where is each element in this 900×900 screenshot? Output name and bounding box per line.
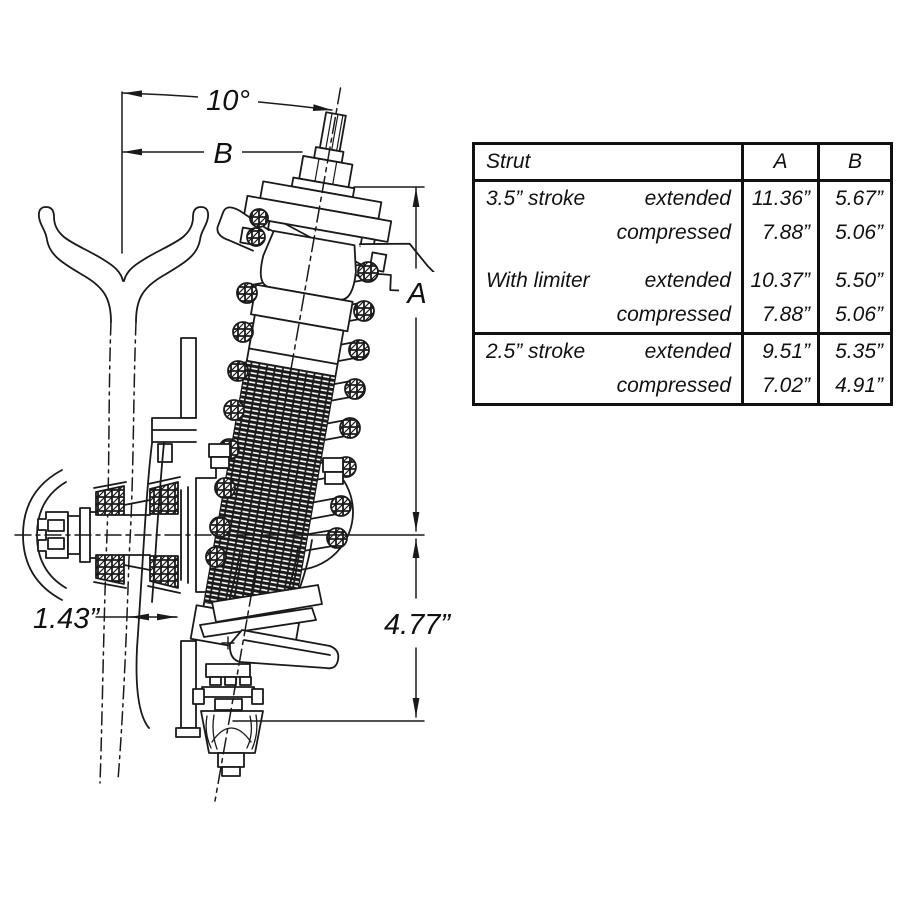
brake-rotor [137,338,201,737]
table-row: compressed7.88”5.06” [475,298,890,332]
row-a-value: 7.88” [741,216,817,250]
row-b-value: 5.06” [817,216,890,250]
row-state: extended [643,264,741,298]
row-a-value: 9.51” [741,335,817,369]
row-label: 2.5” stroke [475,335,643,369]
header-a: A [741,145,817,179]
row-b-value: 4.91” [817,369,890,403]
row-state: compressed [643,369,741,403]
outer-bearing-bottom [96,555,124,584]
table-row: 3.5” strokeextended11.36”5.67” [475,182,890,216]
table-body: 3.5” strokeextended11.36”5.67”compressed… [475,182,890,403]
row-state: extended [643,335,741,369]
table-spacer-row [475,250,890,264]
row-b-value: 5.06” [817,298,890,332]
row-state: extended [643,182,741,216]
table-row: With limiterextended10.37”5.50” [475,264,890,298]
row-label: With limiter [475,264,643,298]
strut-diagram-page: 10° B A 1.43” 4.77” Strut A B 3.5” strok… [0,0,900,900]
technical-drawing: 10° B A 1.43” 4.77” [0,0,900,900]
dim-b-label: B [213,138,232,170]
row-b-value: 5.50” [817,264,890,298]
dim-477-label: 4.77” [384,609,451,641]
row-state: compressed [643,298,741,332]
table-row: 2.5” strokeextended9.51”5.35” [475,335,890,369]
inner-bearing-top [150,482,178,514]
row-label: 3.5” stroke [475,182,643,216]
table-header-row: Strut A B [475,145,890,182]
row-a-value: 10.37” [741,264,817,298]
table-row: compressed7.02”4.91” [475,369,890,403]
row-a-value: 7.02” [741,369,817,403]
row-b-value: 5.67” [817,182,890,216]
strut-spec-table: Strut A B 3.5” strokeextended11.36”5.67”… [472,142,893,406]
table-row: compressed7.88”5.06” [475,216,890,250]
dim-143-label: 1.43” [33,603,100,635]
header-b: B [817,145,890,179]
dim-a-label: A [405,278,426,310]
row-b-value: 5.35” [817,335,890,369]
outer-bearing-top [96,486,124,515]
row-state: compressed [643,216,741,250]
row-a-value: 7.88” [741,298,817,332]
row-a-value: 11.36” [741,182,817,216]
angle-dim-label: 10° [206,85,250,117]
header-strut: Strut [475,145,741,179]
